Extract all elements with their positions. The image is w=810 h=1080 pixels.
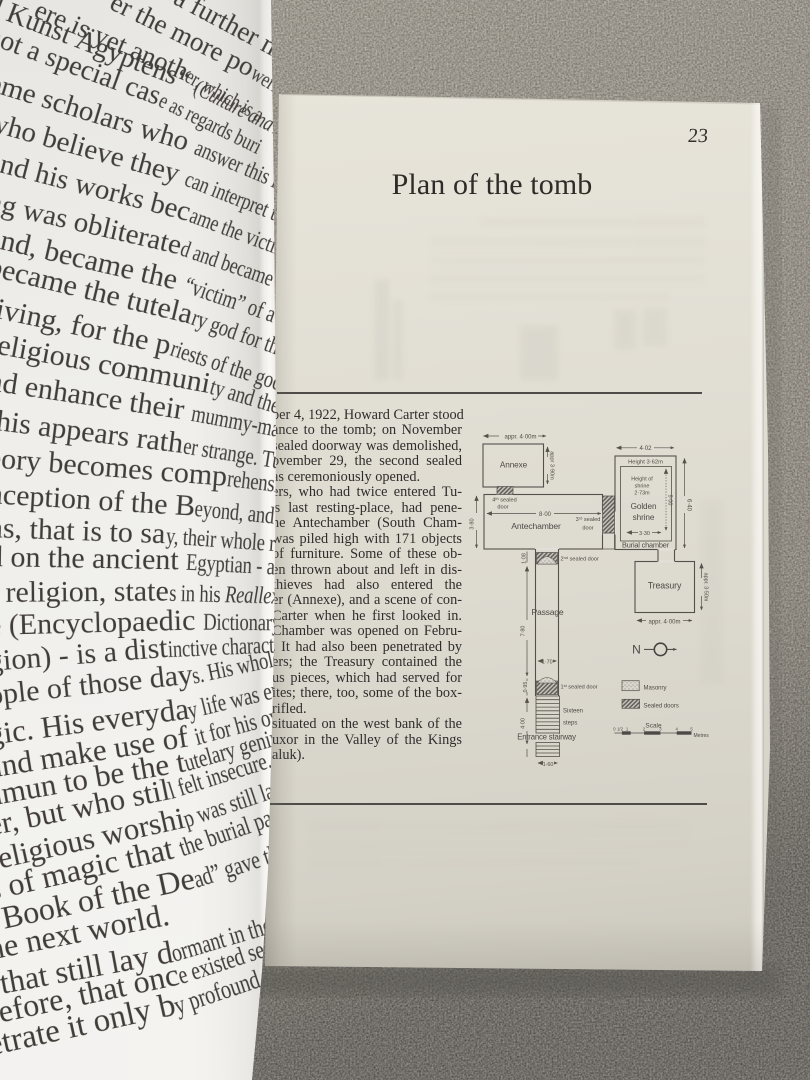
svg-text:door: door <box>582 526 593 532</box>
svg-text:8·00: 8·00 <box>539 512 552 518</box>
svg-text:shrine: shrine <box>633 513 655 522</box>
svg-text:Annexe: Annexe <box>500 461 528 470</box>
svg-text:Treasury: Treasury <box>648 581 682 591</box>
svg-text:door: door <box>497 505 508 511</box>
svg-text:2·73m: 2·73m <box>634 491 650 497</box>
svg-text:1/2: 1/2 <box>617 727 623 732</box>
svg-text:steps: steps <box>563 721 577 727</box>
svg-text:appr. 4·00m: appr. 4·00m <box>648 619 680 625</box>
svg-text:appr 3·90m: appr 3·90m <box>549 451 555 480</box>
svg-text:Entrance stairway: Entrance stairway <box>517 733 576 742</box>
svg-text:5: 5 <box>690 727 693 732</box>
svg-text:Passage: Passage <box>531 607 563 617</box>
svg-text:4th sealed: 4th sealed <box>492 496 517 504</box>
svg-text:4: 4 <box>676 727 679 732</box>
svg-text:Sixteen: Sixteen <box>563 709 583 715</box>
svg-text:appr. 4·00m: appr. 4·00m <box>504 435 536 441</box>
svg-text:Sealed doors: Sealed doors <box>644 704 679 710</box>
svg-text:6·40: 6·40 <box>686 499 692 512</box>
svg-text:N: N <box>632 643 641 657</box>
svg-text:3·30: 3·30 <box>639 531 650 537</box>
svg-text:Height 3·62m: Height 3·62m <box>628 460 663 466</box>
svg-text:4·00: 4·00 <box>521 718 527 729</box>
svg-text:1·08: 1·08 <box>522 553 528 564</box>
svg-text:Burial chamber: Burial chamber <box>622 541 670 550</box>
svg-text:Masonry: Masonry <box>644 686 667 692</box>
svg-text:4·02: 4·02 <box>639 446 652 452</box>
svg-text:shrine: shrine <box>635 484 650 490</box>
svg-text:2nd sealed door: 2nd sealed door <box>561 555 600 563</box>
svg-text:5·00: 5·00 <box>667 495 673 506</box>
svg-text:Metres: Metres <box>694 733 710 739</box>
svg-text:Golden: Golden <box>631 502 657 511</box>
svg-text:1·60: 1·60 <box>543 762 554 768</box>
svg-text:1: 1 <box>626 727 629 732</box>
svg-text:0·95: 0·95 <box>523 682 529 693</box>
svg-text:3rd sealed: 3rd sealed <box>576 516 601 524</box>
svg-text:0: 0 <box>613 727 616 732</box>
svg-text:1st sealed door: 1st sealed door <box>561 683 598 691</box>
svg-text:3·80: 3·80 <box>470 518 476 529</box>
svg-text:Antechamber: Antechamber <box>511 521 561 531</box>
svg-text:7·80: 7·80 <box>521 626 527 637</box>
svg-text:Height of: Height of <box>631 477 653 483</box>
svg-text:1·70: 1·70 <box>542 660 553 666</box>
svg-text:appr. 3·50m: appr. 3·50m <box>703 573 709 602</box>
svg-text:3: 3 <box>659 727 662 732</box>
